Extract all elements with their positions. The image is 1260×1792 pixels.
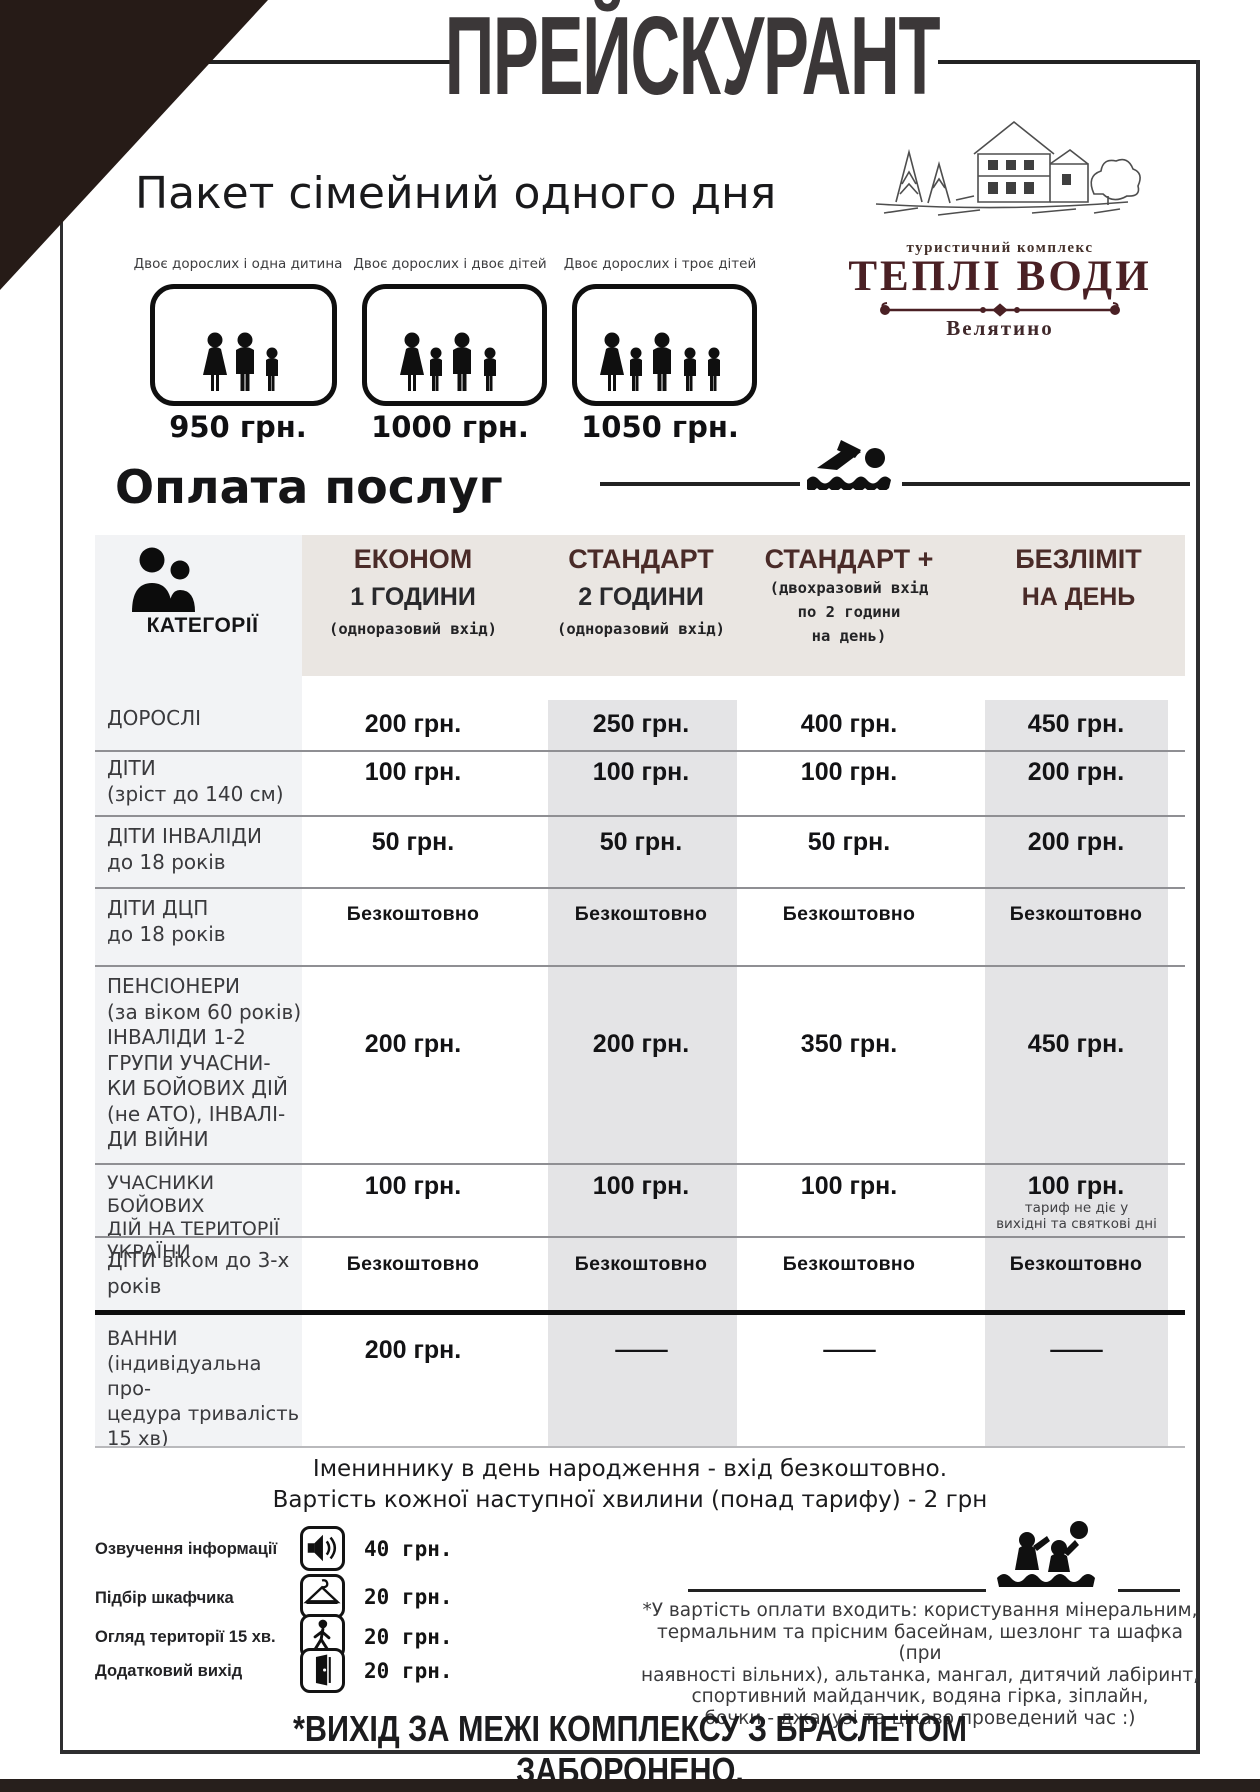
free-cell: Безкоштовно [976,1253,1176,1276]
price-cell: 200 грн. [313,1336,513,1365]
price-cell: 400 грн. [749,710,949,739]
per-minute-note: Вартість кожної наступної хвилини (понад… [170,1487,1090,1513]
column-title-standard-plus: СТАНДАРТ + [734,544,964,575]
family-two-adults-one-child-icon [160,289,327,391]
row-separator [95,1163,1185,1165]
price-cell: 200 грн. [313,710,513,739]
water-polo-icon [993,1518,1111,1592]
free-cell: Безкоштовно [976,903,1176,926]
dash: — [615,1337,668,1363]
dash: — [1050,1337,1103,1363]
family-option-price: 1050 грн. [560,410,760,444]
column-stripe-standard [548,700,737,1446]
family-option-label: Двоє дорослих і троє дітей [550,256,770,272]
price-cell: 100 грн. [541,1172,741,1201]
tariff-restriction-note: тариф не діє у вихідні та святкові дні [974,1200,1179,1232]
column-note: (одноразовий вхід) [521,620,761,638]
dash: — [823,1337,876,1363]
column-note: (двохразовий вхід по 2 години на день) [734,576,964,648]
row-separator [95,750,1185,752]
family-option-label: Двоє дорослих і двоє дітей [340,256,560,272]
row-category: ДІТИ віком до 3-х років [107,1248,302,1299]
free-cell: Безкоштовно [313,1253,513,1276]
price-cell: 50 грн. [541,828,741,857]
free-cell: Безкоштовно [541,903,741,926]
table-bottom-separator [95,1446,1185,1448]
family-option-card [572,284,757,406]
row-category: ДІТИ ДЦП до 18 років [107,896,302,947]
service-price: 20 грн. [364,1585,494,1609]
family-option-price: 1000 грн. [350,410,550,444]
bottom-bar-decoration [0,1779,1260,1792]
service-price: 20 грн. [364,1625,494,1649]
price-cell: 100 грн. [313,1172,513,1201]
price-cell: 200 грн. [313,1030,513,1059]
service-price: 20 грн. [364,1659,494,1683]
free-cell: Безкоштовно [749,903,949,926]
frame-bottom-border [60,1750,1200,1754]
price-cell: 200 грн. [541,1030,741,1059]
service-label: Додатковий вихід [95,1662,295,1680]
swimmer-icon [803,428,899,490]
price-cell: 250 грн. [541,710,741,739]
row-category: ПЕНСІОНЕРИ (за віком 60 років) ІНВАЛІДИ … [107,974,302,1153]
door-icon [300,1648,345,1693]
frame-left-border [60,60,63,1750]
column-title-unlimited: БЕЗЛІМІТ [976,544,1181,575]
categories-people-icon [122,546,206,612]
price-cell: 50 грн. [749,828,949,857]
column-stripe-unlimited [985,700,1168,1446]
row-separator [95,965,1185,967]
row-separator [95,815,1185,817]
included-rule-right [1118,1589,1180,1592]
price-cell: 100 грн. [749,758,949,787]
payment-section-heading: Оплата послуг [115,460,503,514]
free-cell: Безкоштовно [541,1253,741,1276]
service-price: 40 грн. [364,1537,494,1561]
row-category: ДОРОСЛІ [107,706,302,732]
price-cell: 100 грн. [541,758,741,787]
hanger-icon [300,1574,345,1619]
column-note: (одноразовий вхід) [303,620,523,638]
frame-right-border [1196,60,1200,1750]
price-cell: 50 грн. [313,828,513,857]
family-option-card [362,284,547,406]
row-category: ДІТИ ІНВАЛІДИ до 18 років [107,824,302,875]
price-cell: 200 грн. [976,758,1176,787]
price-cell: 450 грн. [976,710,1176,739]
row-category: ВАННИ (індивідуальна про- цедура тривалі… [107,1326,302,1451]
table-category-header: КАТЕГОРІЇ [100,614,305,638]
row-category: ДІТИ (зріст до 140 см) [107,756,302,807]
page-title: ПРЕЙСКУРАНТ [444,0,940,112]
logo-location: Велятино [845,316,1155,341]
free-cell: Безкоштовно [313,903,513,926]
column-title-standard: СТАНДАРТ [531,544,751,575]
column-subtitle: НА ДЕНЬ [976,583,1181,612]
payment-rule-left [600,482,800,486]
included-rule-left [688,1589,986,1592]
family-option-price: 950 грн. [138,410,338,444]
family-two-adults-two-children-icon [372,289,537,391]
logo-name: ТЕПЛІ ВОДИ [820,252,1180,301]
free-cell: Безкоштовно [749,1253,949,1276]
column-subtitle: 2 ГОДИНИ [531,583,751,612]
row-separator [95,1236,1185,1238]
row-separator [95,887,1185,889]
no-service-dash: — [976,1336,1176,1365]
price-cell: 100 грн. [976,1172,1176,1201]
price-cell: 100 грн. [749,1172,949,1201]
no-service-dash: — [749,1336,949,1365]
column-subtitle: 1 ГОДИНИ [313,583,513,612]
family-option-card [150,284,337,406]
title-rule-right [938,60,1196,64]
price-cell: 200 грн. [976,828,1176,857]
service-label: Огляд території 15 хв. [95,1628,295,1646]
price-list-page: ПРЕЙСКУРАНТ туристичний комплекс ТЕПЛІ В… [0,0,1260,1792]
price-cell: 350 грн. [749,1030,949,1059]
corner-triangle-decoration [0,0,268,290]
price-cell: 100 грн. [313,758,513,787]
family-two-adults-three-children-icon [582,289,747,391]
column-title-econom: ЕКОНОМ [313,544,513,575]
no-service-dash: — [541,1336,741,1365]
payment-rule-right [902,482,1190,486]
speaker-icon [300,1526,345,1571]
service-label: Підбір шкафчика [95,1589,295,1607]
thick-row-separator [95,1310,1185,1315]
birthday-note: Імениннику в день народження - вхід безк… [170,1456,1090,1482]
service-label: Озвучення інформації [95,1540,295,1558]
resort-house-sketch-icon [856,112,1148,238]
price-cell: 450 грн. [976,1030,1176,1059]
